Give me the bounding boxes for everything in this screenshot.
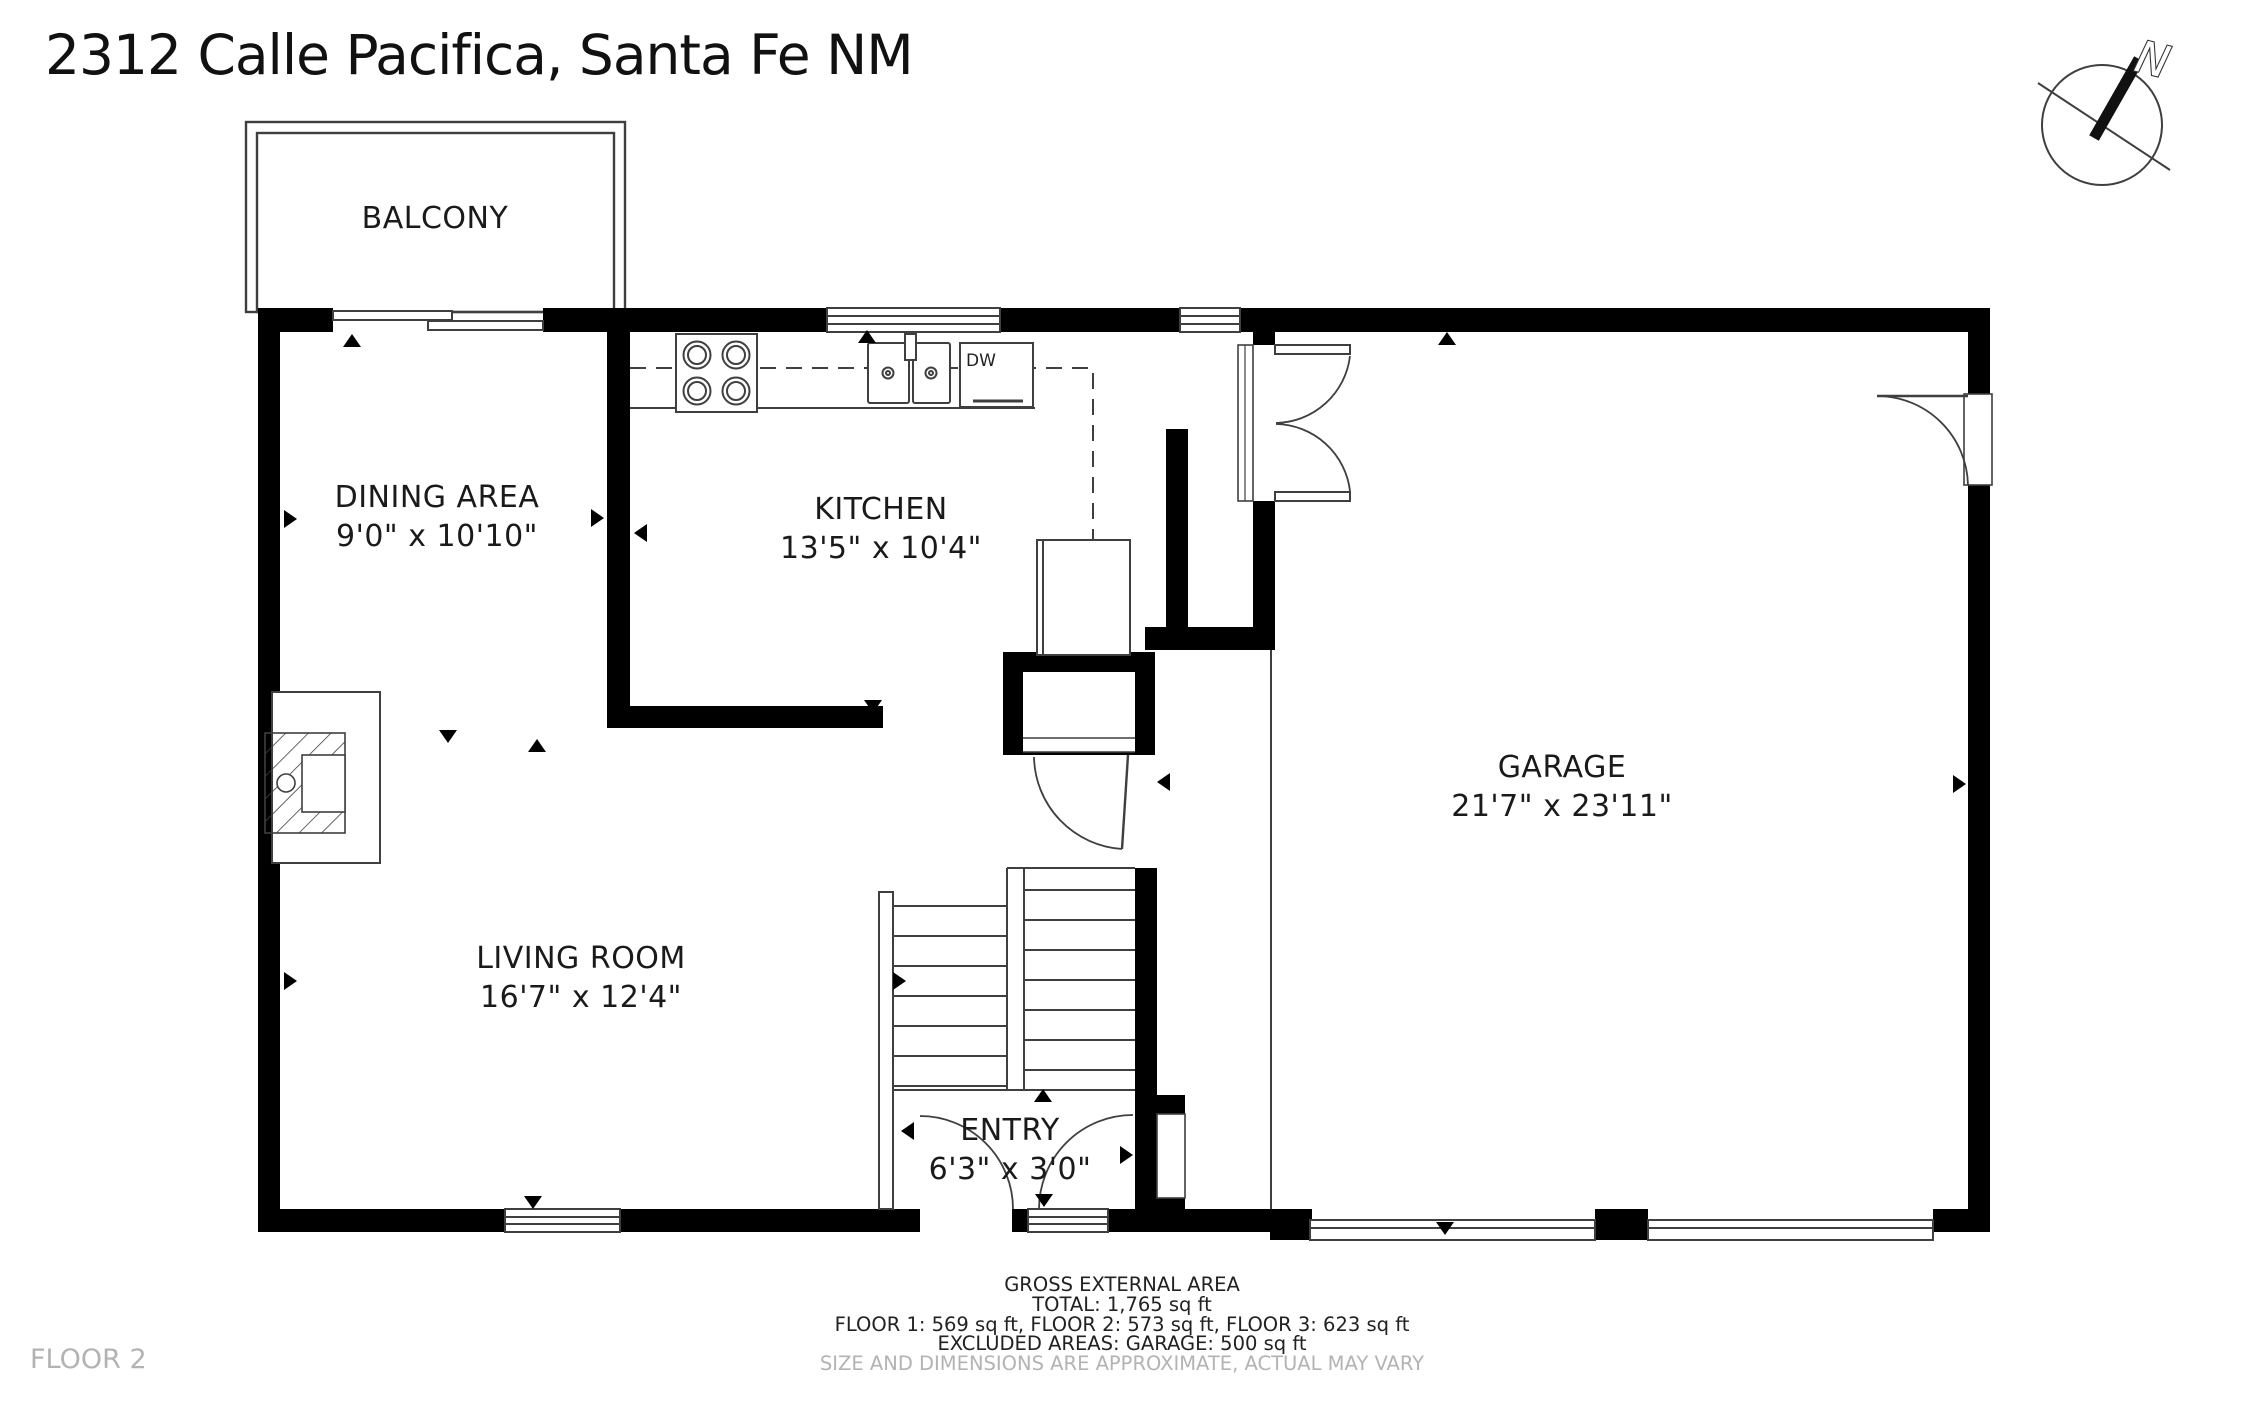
entry-garage-doorframe: [1157, 1114, 1185, 1198]
exterior-walls: [258, 308, 1990, 1240]
stair-left-flight: [893, 906, 1007, 1086]
marker-up-balcony-door: [343, 334, 361, 347]
pantry-window: [1180, 308, 1240, 332]
area-summary: GROSS EXTERNAL AREA TOTAL: 1,765 sq ft F…: [820, 1273, 1424, 1375]
marker-left-garage-left: [1157, 773, 1170, 791]
marker-right-entry: [1120, 1146, 1133, 1164]
garage-side-door: [1877, 394, 1992, 485]
wall-kitchen-bottom: [607, 706, 883, 728]
marker-down-entry-bottom: [1035, 1194, 1053, 1207]
entry-label: ENTRY: [960, 1113, 1060, 1148]
stove: [676, 334, 757, 412]
dining-dims: 9'0" x 10'10": [336, 519, 538, 554]
wall-bottom-2: [620, 1209, 920, 1232]
entry-doorframe-cap-top: [1157, 1095, 1185, 1114]
wall-garage-divider-mid: [1253, 501, 1275, 650]
kitchen-window: [827, 308, 1000, 332]
wall-dining-kitchen: [607, 332, 630, 728]
kitchen-label: KITCHEN: [814, 492, 948, 527]
double-door-leaf-top: [1275, 345, 1350, 354]
marker-up-garage-top: [1438, 332, 1456, 345]
kitchen-sink: [868, 334, 950, 403]
wall-top-4: [1240, 308, 1990, 332]
double-door-arc-top: [1276, 356, 1350, 423]
garage-dims: 21'7" x 23'11": [1451, 789, 1673, 824]
wall-right-lower: [1968, 485, 1990, 1232]
fireplace-flue: [277, 774, 295, 792]
compass-rose: N: [2038, 31, 2175, 185]
wall-top-2: [543, 308, 827, 332]
wall-bottom-3: [1012, 1209, 1028, 1232]
marker-right-living-left: [284, 972, 297, 990]
double-door-arc-bottom: [1276, 424, 1350, 491]
wall-bottom-stub: [1270, 1209, 1312, 1240]
sliding-door-panel-1: [333, 311, 452, 320]
disclaimer: SIZE AND DIMENSIONS ARE APPROXIMATE, ACT…: [820, 1352, 1424, 1375]
living-room-window: [505, 1209, 620, 1232]
garage-double-doors: [1238, 345, 1350, 501]
fridge-counter: [1037, 540, 1130, 655]
sliding-door-panel-2: [428, 321, 543, 330]
wall-right-upper: [1968, 308, 1990, 394]
marker-left-kitchen-wall: [634, 524, 647, 542]
living-room-dims: 16'7" x 12'4": [480, 980, 682, 1015]
entry-doorframe-cap-bottom: [1157, 1198, 1185, 1209]
dimension-markers: [284, 330, 1966, 1235]
floorplan-page: 2312 Calle Pacifica, Santa Fe NM N: [0, 0, 2244, 1401]
stair-railing: [879, 892, 893, 1209]
marker-right-garage-right: [1953, 775, 1966, 793]
garage-label: GARAGE: [1498, 750, 1627, 785]
marker-up-living-top: [528, 739, 546, 752]
kitchen-dims: 13'5" x 10'4": [780, 531, 982, 566]
floor-label: FLOOR 2: [30, 1344, 147, 1375]
wall-garage-divider-top: [1253, 332, 1275, 345]
closet: [1003, 652, 1155, 849]
marker-right-dining-wall: [591, 509, 604, 527]
closet-door-swing-arc: [1034, 757, 1122, 849]
living-room-label: LIVING ROOM: [476, 941, 686, 976]
marker-down-living-window: [524, 1196, 542, 1209]
page-title: 2312 Calle Pacifica, Santa Fe NM: [45, 23, 913, 87]
marker-down-dining-bottom: [439, 730, 457, 743]
wall-top-3: [1000, 308, 1180, 332]
garage-door-pier: [1595, 1209, 1648, 1240]
interior-walls: [607, 332, 1275, 1209]
garage-side-doorframe: [1964, 394, 1992, 485]
fireplace-firebox: [302, 755, 345, 812]
wall-bottom-1: [258, 1209, 505, 1232]
dishwasher: DW: [960, 343, 1033, 407]
stair-right-flight: [1024, 890, 1135, 1070]
entry-dims: 6'3" x 3'0": [929, 1152, 1092, 1187]
sink-faucet: [905, 334, 916, 360]
balcony-sliding-door: [333, 311, 543, 330]
garage-side-door-swing-arc: [1877, 396, 1968, 485]
marker-left-entry: [901, 1122, 914, 1140]
marker-right-stair-rail: [893, 972, 906, 990]
closet-interior: [1023, 672, 1135, 752]
floorplan-canvas: 2312 Calle Pacifica, Santa Fe NM N: [0, 0, 2244, 1401]
fireplace: [265, 692, 380, 863]
closet-door-leaf: [1122, 755, 1128, 849]
dishwasher-label: DW: [966, 351, 996, 371]
entry-front-window: [1028, 1209, 1108, 1232]
compass-north-label: N: [2130, 31, 2174, 88]
double-door-leaf-bottom: [1275, 492, 1350, 501]
marker-right-dining-left: [284, 510, 297, 528]
garage-door-right: [1648, 1220, 1933, 1240]
wall-pantry-bottom: [1145, 627, 1272, 650]
balcony-label: BALCONY: [362, 201, 509, 236]
dining-label: DINING AREA: [335, 480, 540, 515]
wall-pantry-left: [1166, 429, 1188, 650]
wall-stair-entry-right: [1135, 868, 1157, 1209]
